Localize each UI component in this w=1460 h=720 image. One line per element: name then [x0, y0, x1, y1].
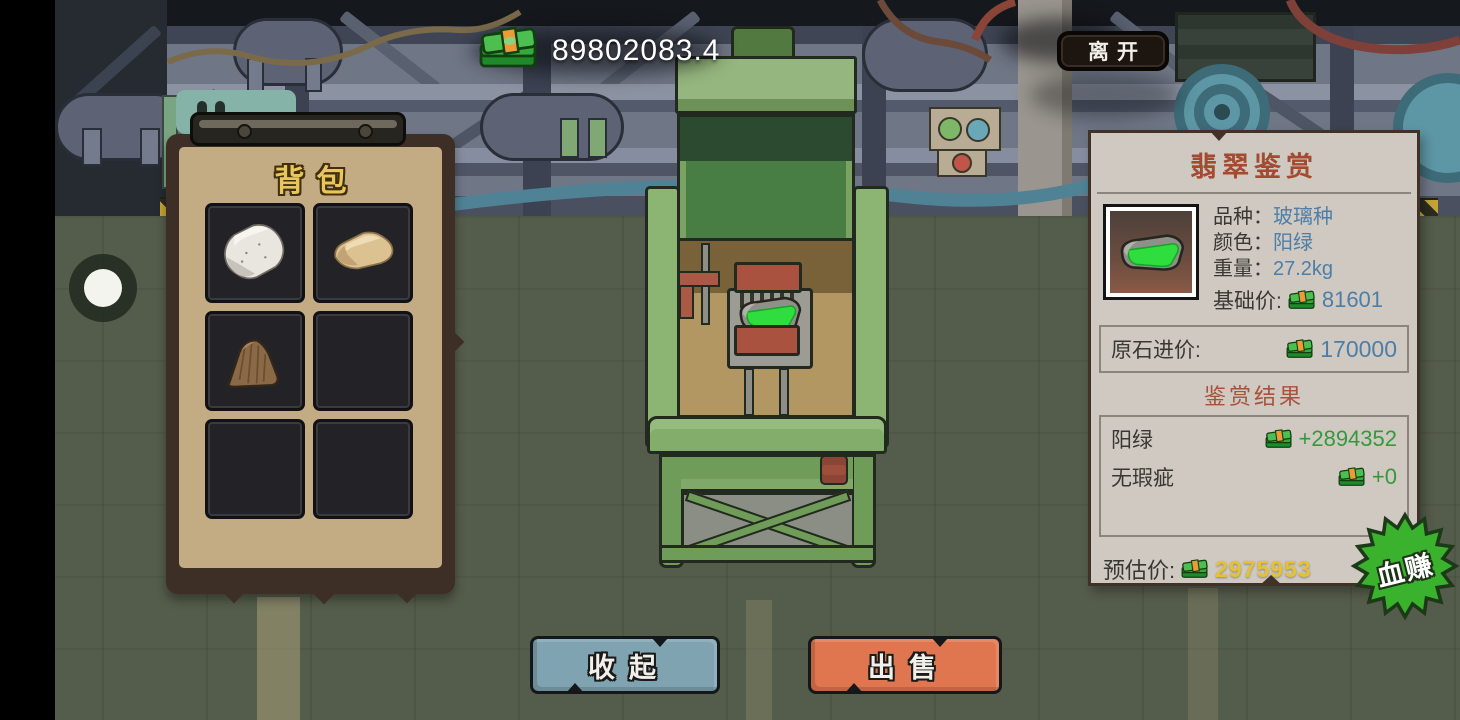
- cost-value: 170000: [1320, 336, 1397, 363]
- field-value: 27.2kg: [1273, 256, 1333, 282]
- press-leg: [744, 368, 754, 416]
- backpack-slot-1[interactable]: [205, 203, 305, 303]
- result-value: +2894352: [1299, 426, 1398, 452]
- press-leg: [779, 368, 789, 416]
- press-lever-arm: [679, 285, 694, 319]
- joystick-knob: [84, 269, 122, 307]
- backpack-grid: [205, 203, 413, 519]
- cost-row: 原石进价: 170000: [1111, 334, 1397, 364]
- collapse-button-label: 收起: [588, 646, 670, 685]
- jade-thumbnail: [1103, 204, 1199, 300]
- machine-tabletop: [647, 416, 887, 454]
- backpack-panel: 背包: [166, 134, 455, 594]
- backpack-slot-3[interactable]: [205, 311, 305, 411]
- machine-column-right: [853, 186, 889, 448]
- floor-stripe: [1188, 588, 1218, 720]
- panel-notch: [1259, 575, 1283, 586]
- machine-knob: [820, 455, 848, 485]
- screw-icon: [358, 124, 373, 139]
- backpack-clipboard-bar: [190, 112, 406, 146]
- game-screen: 89802083.4 离开 背包: [0, 0, 1460, 720]
- result-row: 无瑕疵 +0: [1111, 462, 1397, 492]
- money-icon: [476, 24, 542, 72]
- sell-button-label: 出售: [868, 646, 950, 685]
- field-color: 颜色： 阳绿: [1213, 230, 1407, 256]
- result-value-group: +0: [1332, 464, 1397, 490]
- floor-stripe: [746, 600, 772, 720]
- appraisal-title: 翡翠鉴赏: [1091, 145, 1417, 184]
- press-top-block: [734, 262, 802, 293]
- result-label: 无瑕疵: [1111, 462, 1174, 492]
- letterbox-left: [0, 0, 55, 720]
- backpack-slot-6[interactable]: [313, 419, 413, 519]
- field-weight: 重量： 27.2kg: [1213, 256, 1407, 282]
- jade-fields: 品种： 玻璃种 颜色： 阳绿 重量： 27.2kg 基础价:: [1213, 204, 1407, 315]
- estimate-label: 预估价:: [1103, 553, 1175, 585]
- control-panel-icon: [930, 108, 1000, 176]
- cost-label: 原石进价:: [1111, 334, 1201, 364]
- profit-badge: 血赚: [1349, 511, 1460, 621]
- jade-thumbnail-image: [1110, 211, 1192, 293]
- result-label: 阳绿: [1111, 424, 1153, 454]
- press-bottom-block: [734, 325, 800, 356]
- money-value: 89802083.4: [552, 34, 721, 68]
- base-price-label: 基础价:: [1213, 285, 1282, 315]
- appraisal-panel: 翡翠鉴赏 品种： 玻璃种 颜色： 阳绿: [1088, 130, 1420, 586]
- backpack-slot-4[interactable]: [313, 311, 413, 411]
- jade-info-row: 品种： 玻璃种 颜色： 阳绿 重量： 27.2kg 基础价:: [1103, 204, 1407, 315]
- field-value: 玻璃种: [1273, 204, 1333, 230]
- smoke-smudge: [1030, 72, 1180, 118]
- field-value: 阳绿: [1273, 230, 1313, 256]
- backpack-slot-5[interactable]: [205, 419, 305, 519]
- leave-button[interactable]: 离开: [1057, 31, 1169, 71]
- sell-button[interactable]: 出售: [808, 636, 1002, 694]
- money-icon: [1287, 289, 1317, 311]
- machine-opening: [677, 114, 855, 241]
- white-rough-stone-icon: [212, 210, 298, 296]
- field-variety: 品种： 玻璃种: [1213, 204, 1407, 230]
- floor-stripe: [257, 597, 300, 720]
- result-section-title: 鉴赏结果: [1091, 379, 1417, 411]
- leave-button-label: 离开: [1088, 36, 1146, 66]
- cost-value-group: 170000: [1280, 336, 1397, 363]
- joystick[interactable]: [69, 254, 137, 322]
- base-price-value: 81601: [1322, 287, 1383, 313]
- backpack-title: 背包: [166, 156, 455, 200]
- panel-notch: [1209, 130, 1229, 141]
- field-label: 重量：: [1213, 256, 1273, 282]
- backpack-slot-2[interactable]: [313, 203, 413, 303]
- base-price-row: 基础价: 81601: [1213, 285, 1407, 315]
- result-value-group: +2894352: [1259, 426, 1398, 452]
- machine-bottom-rail: [659, 545, 876, 563]
- money-icon: [1337, 466, 1367, 488]
- money-icon: [1285, 338, 1315, 360]
- result-row: 阳绿 +2894352: [1111, 424, 1397, 454]
- sand-rough-stone-icon: [320, 210, 406, 296]
- jade-stone-icon: [1114, 229, 1188, 275]
- brown-rough-stone-icon: [212, 318, 298, 404]
- field-label: 品种：: [1213, 204, 1273, 230]
- field-label: 颜色：: [1213, 230, 1273, 256]
- result-value: +0: [1372, 464, 1397, 490]
- collapse-button[interactable]: 收起: [530, 636, 720, 694]
- money-icon: [1180, 558, 1210, 580]
- machine-column-left: [645, 186, 680, 448]
- money-icon: [1264, 428, 1294, 450]
- divider: [1097, 192, 1411, 194]
- screw-icon: [237, 124, 252, 139]
- cost-box: 原石进价: 170000: [1099, 325, 1409, 373]
